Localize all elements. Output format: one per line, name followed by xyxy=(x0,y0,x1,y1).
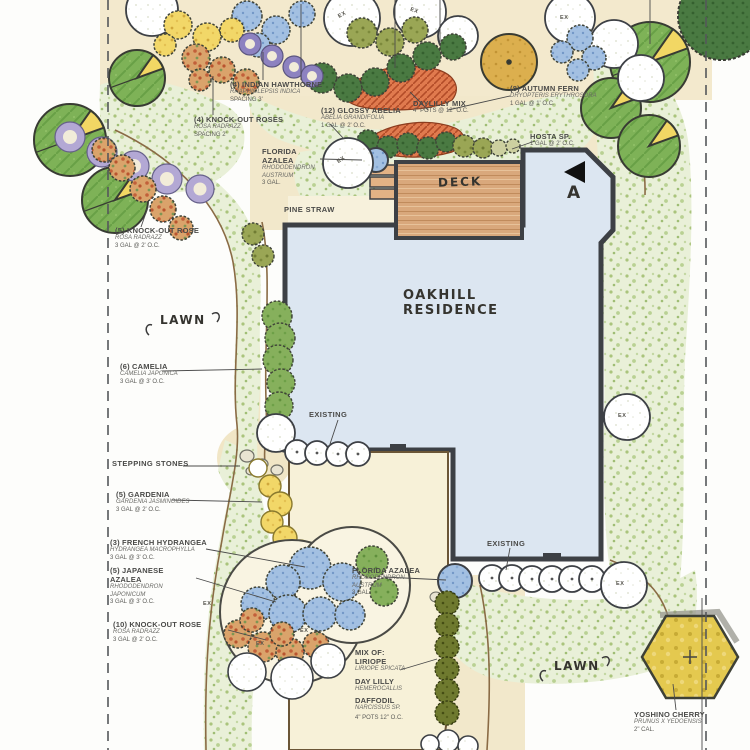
label-florida-azalea-bottom: FLORIDA AZALEA RHODODENDRON AUSTRUM 3 GA… xyxy=(352,566,427,598)
label-indian-hawthorne: (4) INDIAN HAWTHORNE RHAPHIOLEPSIS INDIC… xyxy=(230,80,325,104)
plant-name: (5) JAPANESE AZALEA xyxy=(110,566,188,584)
plant-spec: 3 GAL @ 3' O.C. xyxy=(110,555,210,563)
plant-botanical: GARDENIA JASMINOIDES xyxy=(116,499,211,507)
plant-spec: 2" CAL. xyxy=(634,727,714,735)
plant-botanical: RHODODENDRON AUSTRIUM xyxy=(262,165,320,180)
mix-item-botanical: NARCISSUS SP. xyxy=(355,705,437,713)
plant-botanical: RHODODENDRON AUSTRUM xyxy=(352,575,427,590)
plant-botanical: ROSA RADRAZZ xyxy=(113,629,208,637)
plant-name: DAYLILLY MIX xyxy=(413,99,493,108)
plant-spec: 1 GAL @ 2' O.C. xyxy=(321,123,409,131)
plant-botanical: RHODODENDRON JAPONICUM xyxy=(110,584,188,599)
lawn-label-left: LAWN xyxy=(160,313,206,327)
plant-spec: SPACING 2' xyxy=(194,132,289,140)
plant-botanical: PRUNUS X YEDOENSIS xyxy=(634,719,714,727)
pine-straw-label: PINE STRAW xyxy=(284,205,335,214)
mix-item-name: DAY LILLY xyxy=(355,677,437,686)
plant-spec: 1 GAL @ 1' O.C. xyxy=(510,101,610,109)
plant-name: FLORIDA AZALEA xyxy=(352,566,427,575)
label-knockout-rose-10: (10) KNOCK-OUT ROSE ROSA RADRAZZ 3 GAL @… xyxy=(113,620,208,644)
label-autumn-fern: (8) AUTUMN FERN DRYOPTERIS ERYTHROSORA 1… xyxy=(510,84,610,108)
mix-item-botanical: HEMEROCALLIS xyxy=(355,686,437,694)
label-gardenia: (5) GARDENIA GARDENIA JASMINOIDES 3 GAL … xyxy=(116,490,211,514)
plant-name: HOSTA SP. xyxy=(530,132,600,141)
deck-label: DECK xyxy=(438,174,483,190)
plant-botanical: ABELIA GRANDIFOLIA xyxy=(321,115,409,123)
plant-spec: 3 GAL @ 3' O.C. xyxy=(110,599,188,607)
mix-item-name: DAFFODIL xyxy=(355,696,437,705)
label-ground-mix: MIX OF: LIRIOPE LIRIOPE SPICATA DAY LILL… xyxy=(355,648,437,722)
label-french-hydrangea: (3) FRENCH HYDRANGEA HYDRANGEA MACROPHYL… xyxy=(110,538,210,562)
plant-name: (4) KNOCK-OUT ROSES xyxy=(194,115,289,124)
existing-label-bottom: EXISTING xyxy=(487,539,525,548)
ex-tag: EX xyxy=(203,601,212,607)
ex-tag: EX xyxy=(616,581,625,587)
label-hosta: HOSTA SP. 1 GAL @ 2' O.C. xyxy=(530,132,600,149)
label-knockout-rose-5: (5) KNOCK-OUT ROSE ROSA RADRAZZ 3 GAL @ … xyxy=(115,226,207,250)
plant-botanical: ROSA RADRAZZ xyxy=(194,124,289,132)
plant-botanical: ROSA RADRAZZ xyxy=(115,235,207,243)
plant-spec: SPACING 3' xyxy=(230,97,325,105)
plant-spec: 3 GAL xyxy=(352,590,427,598)
door-mark xyxy=(543,553,561,561)
plant-name: (3) FRENCH HYDRANGEA xyxy=(110,538,210,547)
plant-spec: 3 GAL @ 2' O.C. xyxy=(113,637,208,645)
ex-tag: EX xyxy=(618,413,627,419)
label-camelia: (6) CAMELIA CAMELIA JAPONICA 3 GAL @ 3' … xyxy=(120,362,205,386)
plant-name: (10) KNOCK-OUT ROSE xyxy=(113,620,208,629)
plant-spec: 1 GAL @ 2' O.C. xyxy=(530,141,600,149)
plant-spec: 4" POTS @ 12" O.C. xyxy=(413,108,493,116)
plant-botanical: CAMELIA JAPONICA xyxy=(120,371,205,379)
label-japanese-azalea: (5) JAPANESE AZALEA RHODODENDRON JAPONIC… xyxy=(110,566,188,607)
plant-spec: 3 GAL @ 3' O.C. xyxy=(120,379,205,387)
mix-header: MIX OF: xyxy=(355,648,437,657)
plant-name: YOSHINO CHERRY xyxy=(634,710,714,719)
plant-name: (12) GLOSSY ABELIA xyxy=(321,106,409,115)
ex-tag: EX xyxy=(560,15,569,21)
label-glossy-abelia: (12) GLOSSY ABELIA ABELIA GRANDIFOLIA 1 … xyxy=(321,106,409,130)
landscape-plan: (4) INDIAN HAWTHORNE RHAPHIOLEPSIS INDIC… xyxy=(0,0,750,750)
residence-title-line2: RESIDENCE xyxy=(403,303,499,318)
stepping-stones-label: STEPPING STONES xyxy=(112,459,189,468)
label-yoshino-cherry: YOSHINO CHERRY PRUNUS X YEDOENSIS 2" CAL… xyxy=(634,710,714,734)
label-daylilly-mix: DAYLILLY MIX 4" POTS @ 12" O.C. xyxy=(413,99,493,116)
plant-name: (5) KNOCK-OUT ROSE xyxy=(115,226,207,235)
mix-item-name: LIRIOPE xyxy=(355,657,437,666)
mix-spec: 4" POTS 12" O.C. xyxy=(355,715,437,723)
plant-name: (5) GARDENIA xyxy=(116,490,211,499)
existing-label-top: EXISTING xyxy=(309,410,347,419)
plant-spec: 3 GAL. xyxy=(262,180,320,188)
plant-name: (6) CAMELIA xyxy=(120,362,205,371)
plant-botanical: DRYOPTERIS ERYTHROSORA xyxy=(510,93,610,101)
ex-tag: EX xyxy=(256,641,265,647)
existing-tree-near-deck xyxy=(323,138,373,188)
section-marker-label: A xyxy=(567,183,582,203)
plant-botanical: HYDRANGEA MACROPHYLLA xyxy=(110,547,210,555)
ex-tag: EX xyxy=(300,628,309,634)
plant-name: (4) INDIAN HAWTHORNE xyxy=(230,80,325,89)
residence-title-line1: OAKHILL xyxy=(403,288,477,303)
mix-item-botanical: LIRIOPE SPICATA xyxy=(355,666,437,674)
plant-botanical: RHAPHIOLEPSIS INDICA xyxy=(230,89,325,97)
lawn-label-right: LAWN xyxy=(554,659,600,673)
label-knockout-roses-4: (4) KNOCK-OUT ROSES ROSA RADRAZZ SPACING… xyxy=(194,115,289,139)
plant-name: (8) AUTUMN FERN xyxy=(510,84,610,93)
label-florida-azalea-top: FLORIDA AZALEA RHODODENDRON AUSTRIUM 3 G… xyxy=(262,147,320,188)
plant-spec: 3 GAL @ 2' O.C. xyxy=(116,507,211,515)
plant-spec: 3 GAL @ 2' O.C. xyxy=(115,243,207,251)
plant-name: FLORIDA AZALEA xyxy=(262,147,320,165)
